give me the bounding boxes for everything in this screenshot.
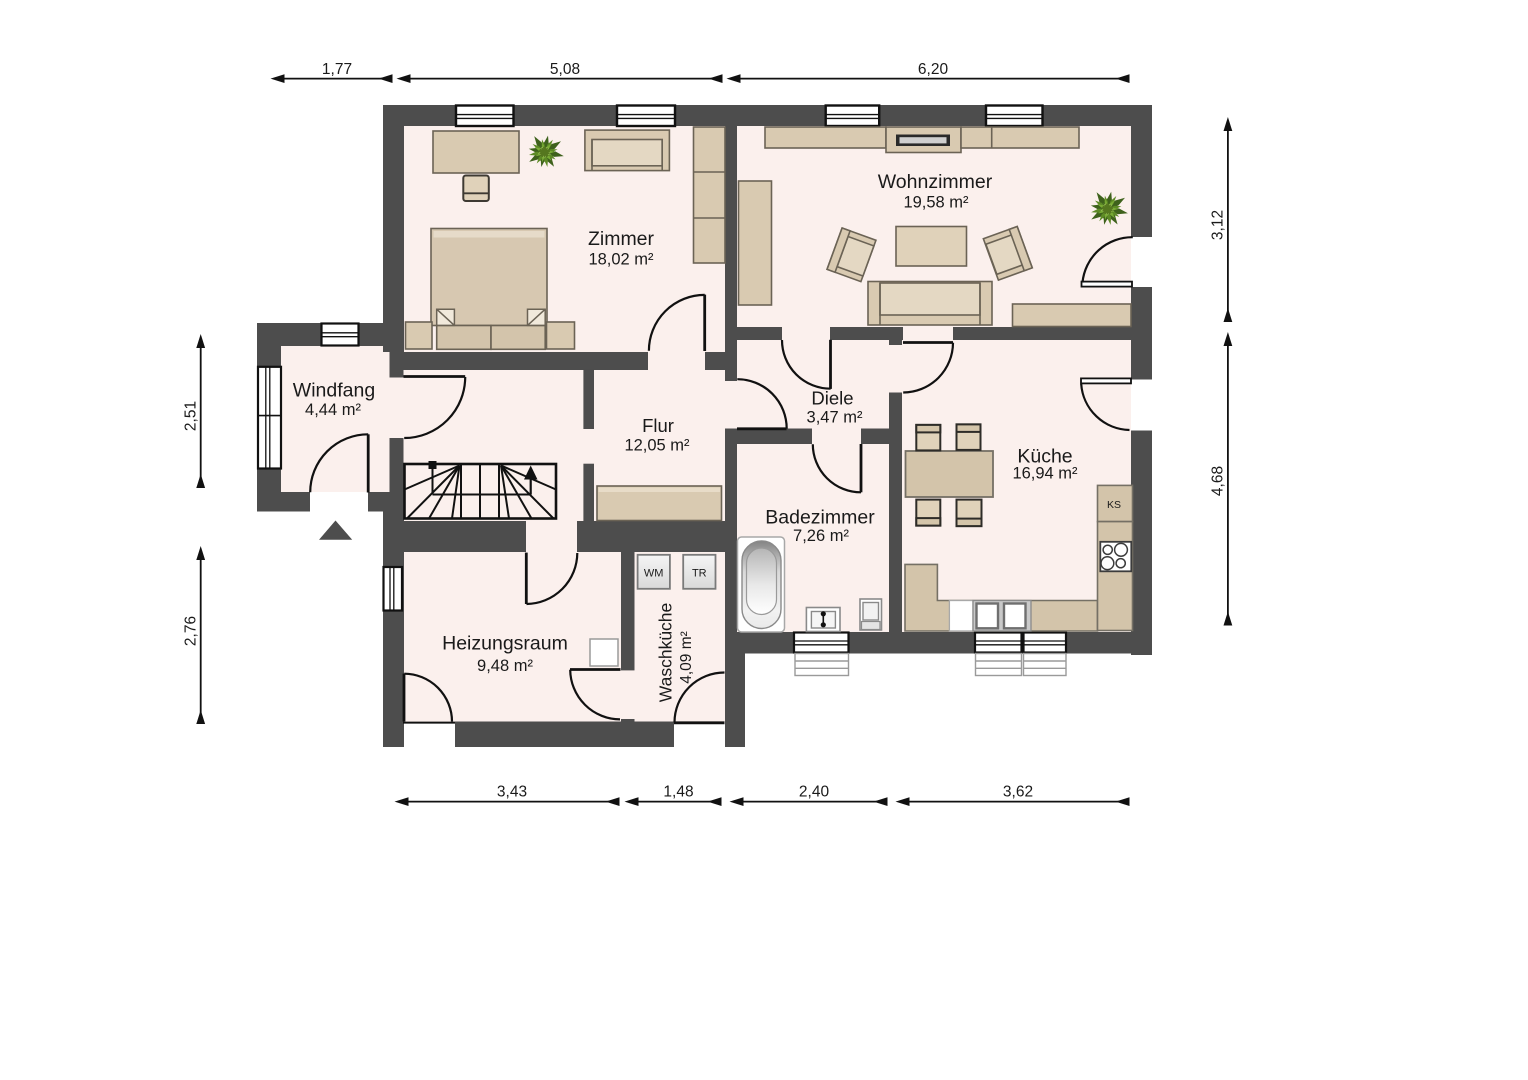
svg-text:6,20: 6,20 bbox=[918, 61, 949, 78]
svg-text:2,51: 2,51 bbox=[183, 401, 200, 431]
svg-text:TR: TR bbox=[692, 568, 707, 580]
svg-text:3,43: 3,43 bbox=[497, 784, 527, 801]
svg-text:3,12: 3,12 bbox=[1210, 210, 1227, 240]
svg-text:3,62: 3,62 bbox=[1003, 784, 1033, 801]
svg-text:2,40: 2,40 bbox=[799, 784, 830, 801]
svg-text:19,58 m²: 19,58 m² bbox=[903, 194, 969, 212]
svg-text:4,44 m²: 4,44 m² bbox=[305, 401, 361, 419]
svg-text:4,09 m²: 4,09 m² bbox=[678, 631, 695, 684]
svg-text:Zimmer: Zimmer bbox=[588, 228, 655, 250]
svg-text:1,77: 1,77 bbox=[322, 61, 352, 78]
svg-text:7,26 m²: 7,26 m² bbox=[793, 527, 849, 545]
svg-text:12,05 m²: 12,05 m² bbox=[624, 437, 690, 455]
svg-text:16,94 m²: 16,94 m² bbox=[1012, 465, 1078, 483]
svg-text:2,76: 2,76 bbox=[183, 616, 200, 646]
svg-text:Flur: Flur bbox=[642, 415, 674, 436]
svg-text:1,48: 1,48 bbox=[663, 784, 693, 801]
svg-text:9,48 m²: 9,48 m² bbox=[477, 657, 533, 675]
svg-text:4,68: 4,68 bbox=[1210, 466, 1227, 496]
svg-text:Wohnzimmer: Wohnzimmer bbox=[878, 171, 993, 193]
svg-text:18,02 m²: 18,02 m² bbox=[588, 251, 654, 269]
svg-text:Waschküche: Waschküche bbox=[656, 603, 676, 703]
svg-text:3,47 m²: 3,47 m² bbox=[807, 409, 863, 427]
svg-text:WM: WM bbox=[644, 568, 664, 580]
svg-text:5,08: 5,08 bbox=[550, 61, 580, 78]
svg-text:Diele: Diele bbox=[811, 388, 853, 409]
svg-text:Heizungsraum: Heizungsraum bbox=[442, 633, 568, 655]
svg-text:Badezimmer: Badezimmer bbox=[765, 507, 875, 529]
svg-text:KS: KS bbox=[1107, 499, 1121, 511]
svg-text:Windfang: Windfang bbox=[293, 380, 375, 402]
